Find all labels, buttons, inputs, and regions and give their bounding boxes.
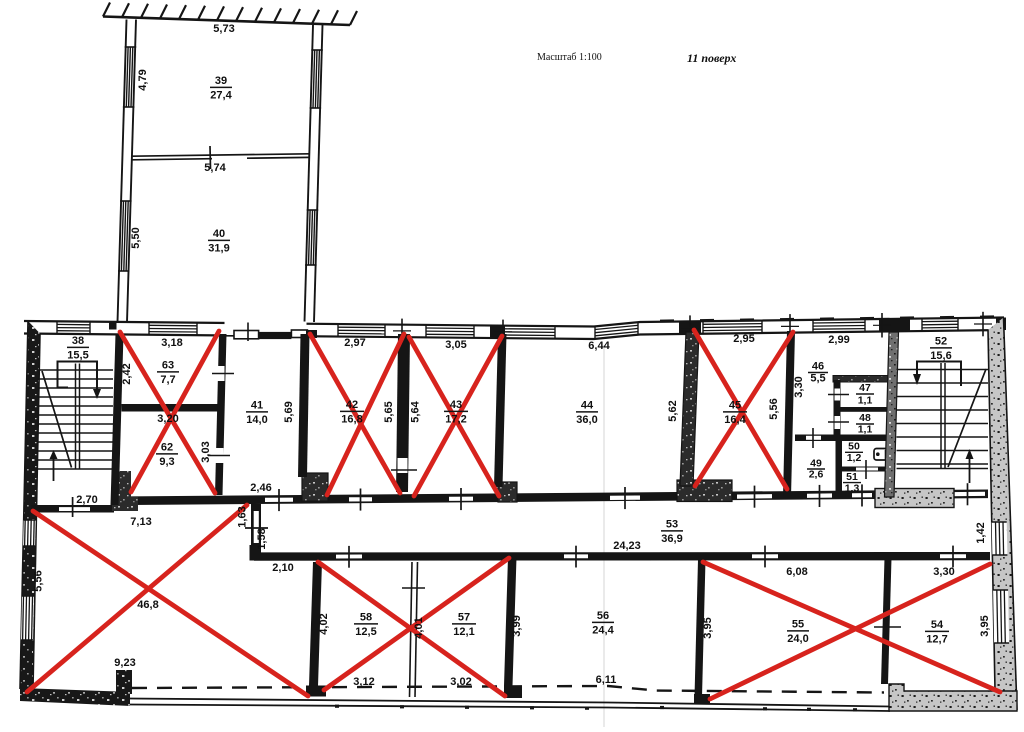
svg-text:3,03: 3,03	[200, 441, 212, 462]
svg-text:53: 53	[666, 518, 678, 530]
svg-text:5,5: 5,5	[810, 373, 825, 385]
svg-text:44: 44	[581, 399, 594, 411]
svg-text:7,13: 7,13	[130, 516, 151, 528]
svg-text:54: 54	[931, 619, 944, 631]
svg-text:50: 50	[848, 441, 860, 453]
svg-text:3,30: 3,30	[793, 376, 805, 397]
svg-text:16,4: 16,4	[724, 414, 746, 426]
svg-text:2,70: 2,70	[76, 494, 97, 506]
svg-text:5,56: 5,56	[768, 398, 780, 419]
svg-text:5,62: 5,62	[667, 400, 679, 421]
svg-text:3,30: 3,30	[933, 566, 954, 578]
svg-text:63: 63	[162, 359, 174, 371]
svg-text:1,58: 1,58	[256, 528, 268, 549]
svg-text:11 поверх: 11 поверх	[687, 51, 736, 65]
svg-text:31,9: 31,9	[208, 242, 229, 254]
svg-text:24,0: 24,0	[787, 633, 808, 645]
svg-text:9,3: 9,3	[159, 456, 174, 468]
svg-text:55: 55	[792, 618, 804, 630]
svg-text:47: 47	[859, 382, 871, 394]
svg-text:5,64: 5,64	[410, 400, 422, 422]
svg-text:27,4: 27,4	[210, 89, 232, 101]
svg-text:4,79: 4,79	[137, 69, 149, 90]
svg-text:4,01: 4,01	[413, 617, 425, 638]
svg-text:43: 43	[450, 399, 462, 411]
svg-text:2,42: 2,42	[121, 363, 133, 384]
svg-text:3,18: 3,18	[161, 337, 182, 349]
svg-text:17,2: 17,2	[445, 413, 466, 425]
svg-text:3,95: 3,95	[979, 615, 991, 636]
svg-text:5,69: 5,69	[283, 401, 295, 422]
svg-text:46: 46	[812, 361, 824, 373]
svg-text:36,9: 36,9	[661, 533, 682, 545]
svg-text:42: 42	[346, 399, 358, 411]
svg-text:3,05: 3,05	[445, 339, 466, 351]
svg-text:3,12: 3,12	[353, 676, 374, 688]
svg-text:6,08: 6,08	[786, 566, 807, 578]
svg-text:15,5: 15,5	[67, 349, 88, 361]
svg-text:9,23: 9,23	[114, 657, 135, 669]
svg-text:2,99: 2,99	[828, 334, 849, 346]
svg-text:57: 57	[458, 611, 470, 623]
svg-text:5,74: 5,74	[204, 162, 226, 174]
svg-text:4,02: 4,02	[318, 613, 330, 634]
svg-text:5,65: 5,65	[383, 401, 395, 422]
svg-text:6,11: 6,11	[596, 674, 617, 686]
svg-text:2,46: 2,46	[250, 482, 271, 494]
svg-text:1,3: 1,3	[845, 482, 860, 494]
svg-text:40: 40	[213, 228, 225, 240]
svg-text:14,0: 14,0	[246, 414, 267, 426]
svg-text:46,8: 46,8	[137, 599, 158, 611]
svg-text:7,7: 7,7	[160, 374, 175, 386]
svg-text:24,23: 24,23	[613, 540, 641, 552]
svg-text:1,2: 1,2	[847, 452, 862, 464]
svg-text:2,97: 2,97	[344, 337, 365, 349]
svg-text:1,63: 1,63	[237, 506, 249, 527]
svg-text:15,6: 15,6	[930, 350, 951, 362]
svg-text:52: 52	[935, 335, 947, 347]
svg-text:36,0: 36,0	[576, 414, 597, 426]
svg-text:56: 56	[597, 610, 609, 622]
svg-text:5,73: 5,73	[213, 23, 234, 35]
svg-text:41: 41	[251, 399, 263, 411]
svg-text:5,50: 5,50	[130, 227, 142, 248]
svg-text:2,10: 2,10	[272, 562, 293, 574]
svg-text:1,1: 1,1	[858, 395, 873, 407]
svg-text:48: 48	[859, 412, 871, 424]
svg-text:12,1: 12,1	[453, 626, 474, 638]
svg-text:24,4: 24,4	[592, 624, 614, 636]
svg-text:3,20: 3,20	[157, 413, 178, 425]
svg-text:58: 58	[360, 611, 372, 623]
svg-text:51: 51	[846, 471, 858, 483]
svg-text:62: 62	[161, 441, 173, 453]
svg-text:3,95: 3,95	[702, 617, 714, 638]
svg-text:12,7: 12,7	[926, 633, 947, 645]
svg-text:Масштаб 1:100: Масштаб 1:100	[537, 52, 602, 63]
svg-text:12,5: 12,5	[355, 626, 376, 638]
svg-text:5,56: 5,56	[33, 570, 45, 591]
svg-text:3,99: 3,99	[511, 615, 523, 636]
svg-text:2,6: 2,6	[809, 469, 824, 481]
svg-text:38: 38	[72, 335, 84, 347]
svg-text:39: 39	[215, 75, 227, 87]
svg-text:16,8: 16,8	[341, 413, 362, 425]
svg-text:1,42: 1,42	[975, 522, 987, 543]
svg-text:2,95: 2,95	[733, 333, 754, 345]
svg-text:1,1: 1,1	[858, 424, 873, 436]
svg-text:3,02: 3,02	[450, 676, 471, 688]
svg-text:45: 45	[729, 399, 741, 411]
svg-text:6,44: 6,44	[588, 340, 610, 352]
